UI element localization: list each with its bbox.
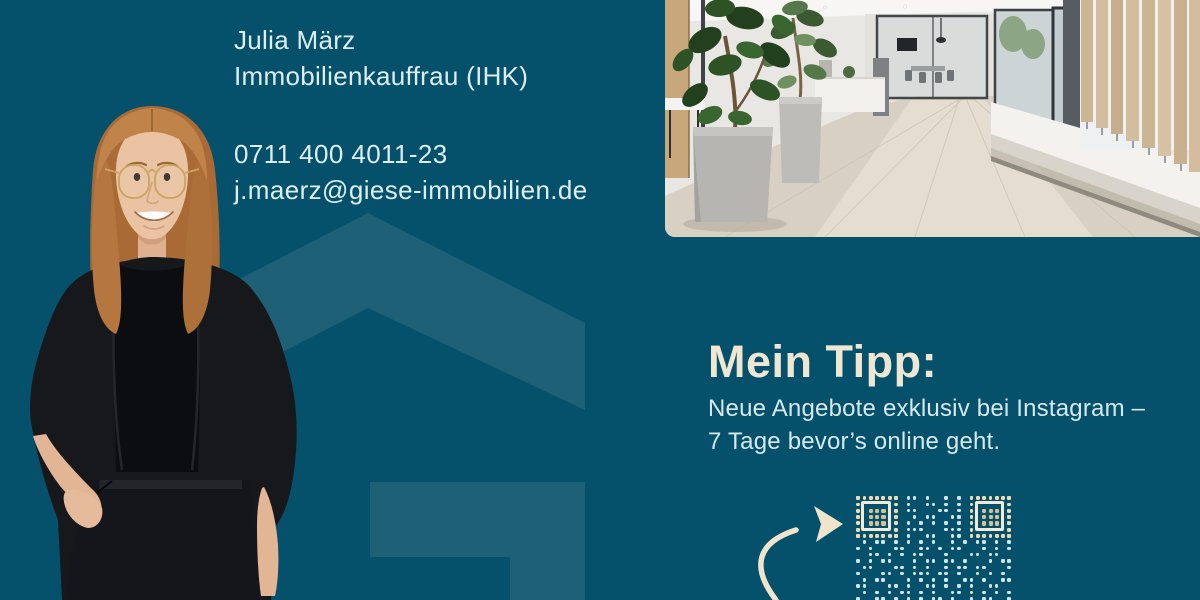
agent-contact-block: 0711 400 4011-23 j.maerz@giese-immobilie… — [234, 136, 588, 208]
qr-code — [855, 495, 1013, 600]
agent-phone: 0711 400 4011-23 — [234, 136, 588, 172]
agent-id-block: Julia März Immobilienkauffrau (IHK) — [234, 22, 528, 94]
tip-line2: 7 Tage bevor’s online geht. — [708, 428, 1000, 456]
office-photo — [665, 0, 1200, 237]
promo-graphic: Julia März Immobilienkauffrau (IHK) 0711… — [0, 0, 1200, 600]
tip-line1: Neue Angebote exklusiv bei Instagram – — [708, 395, 1145, 423]
agent-name: Julia März — [234, 22, 528, 58]
arrow-icon — [742, 498, 854, 600]
tip-heading: Mein Tipp: — [708, 336, 937, 388]
agent-email: j.maerz@giese-immobilien.de — [234, 172, 588, 208]
agent-role: Immobilienkauffrau (IHK) — [234, 58, 528, 94]
